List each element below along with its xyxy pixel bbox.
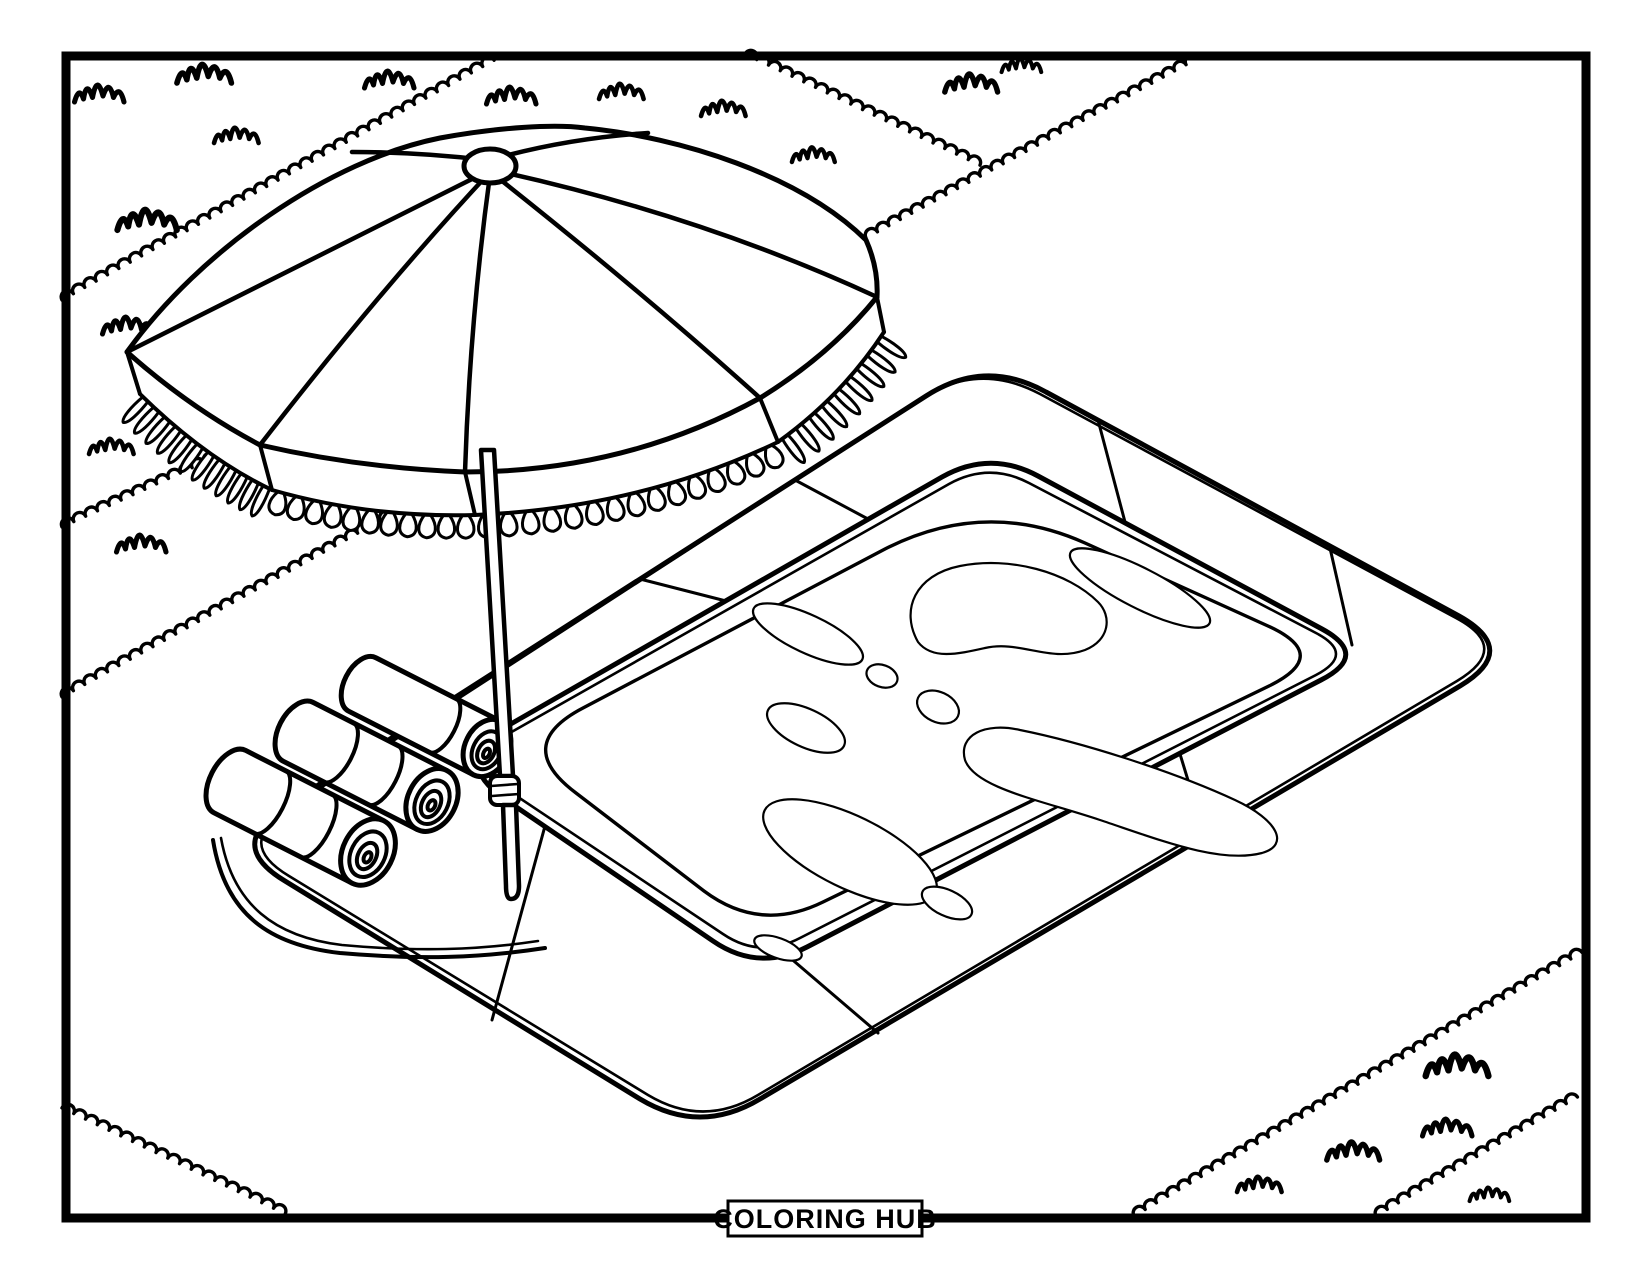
umbrella-tassel xyxy=(521,510,540,535)
zigzag-border-bottom-left xyxy=(62,1104,286,1214)
brand-label: COLORING HUB xyxy=(713,1201,937,1236)
umbrella-tassel xyxy=(399,513,417,537)
umbrella-tassel xyxy=(457,515,474,538)
pole-collar xyxy=(490,776,519,805)
umbrella-tassel xyxy=(438,515,455,538)
coloring-page-canvas: COLORING HUB xyxy=(0,0,1650,1275)
umbrella-tassel xyxy=(499,512,517,536)
umbrella-tassel xyxy=(361,509,380,534)
zigzag-border-bottom-right-1 xyxy=(1133,949,1582,1216)
zigzag-border-top-middle xyxy=(745,50,981,165)
zigzag-border-top-right xyxy=(865,55,1197,238)
coloring-page: COLORING HUB xyxy=(0,0,1650,1275)
umbrella-finial xyxy=(464,149,516,183)
umbrella-tassel xyxy=(380,512,399,536)
brand-label-text: COLORING HUB xyxy=(713,1204,937,1234)
umbrella-tassel xyxy=(418,514,435,538)
